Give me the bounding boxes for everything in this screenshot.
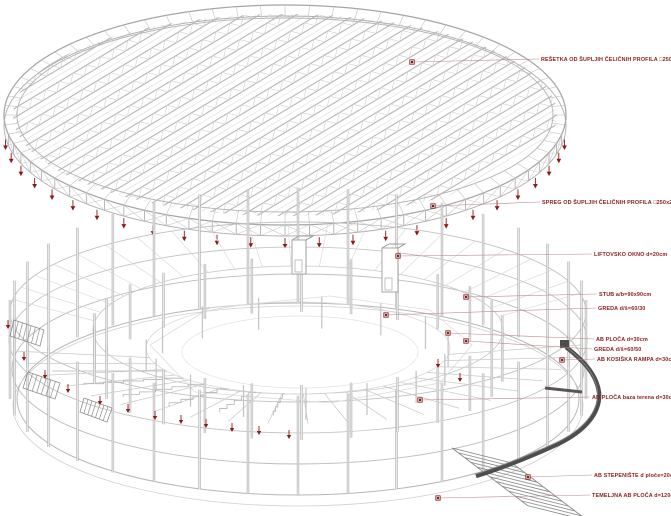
annotation-ab-ploca-baza: AB PLOČA baza terena d=30cm [418, 394, 671, 402]
annotation-label: GREDA d/š=60/30 [598, 306, 645, 312]
annotation-label: REŠETKA OD ŠUPLJIH ČELIČNIH PROFILA □250… [541, 55, 671, 63]
annotation-label: GREDA d/š=60/50 [594, 347, 641, 353]
stadium-bowl-structure [6, 188, 599, 516]
annotation-label: LIFTOVSKO OKNO d=20cm [594, 252, 667, 258]
annotation-label: AB PLOČA d=30cm [596, 336, 648, 343]
annotation-stub: STUB a/b=90x90cm [464, 292, 652, 299]
annotation-label: SPREG OD ŠUPLJIH ČELIČNIH PROFILA □250x2… [542, 198, 671, 206]
annotation-label: TEMELJNA AB PLOČA d=120cm [592, 492, 671, 499]
structural-drawing: REŠETKA OD ŠUPLJIH ČELIČNIH PROFILA □250… [0, 0, 671, 516]
annotation-label: AB STEPENIŠTE d ploče=20cm [594, 471, 671, 479]
annotation-greda-60-30: GREDA d/š=60/30 [384, 306, 646, 317]
drawing-canvas: REŠETKA OD ŠUPLJIH ČELIČNIH PROFILA □250… [0, 0, 671, 516]
roof-perimeter-ring [4, 5, 566, 236]
annotation-ab-stepeniste: AB STEPENIŠTE d ploče=20cm [526, 471, 671, 479]
annotation-label: AB PLOČA baza terena d=30cm [592, 394, 671, 401]
bowl-load-arrows [6, 320, 462, 439]
annotation-label: STUB a/b=90x90cm [599, 292, 651, 298]
annotation-label: AB KOSIŠKA RAMPA d=30cm [597, 355, 671, 363]
annotation-liftovsko-okno: LIFTOVSKO OKNO d=20cm [396, 252, 668, 258]
